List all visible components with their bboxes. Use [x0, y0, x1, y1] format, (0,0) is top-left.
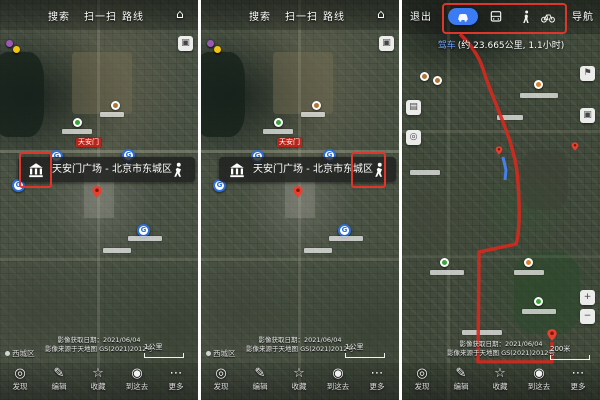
- nav-item-edit[interactable]: ✎编辑: [241, 366, 279, 392]
- more-icon: ⋯: [559, 366, 597, 382]
- map-label: [430, 270, 464, 275]
- lake-patch: [201, 52, 245, 137]
- map-label: [263, 129, 293, 134]
- route-summary: 驾车(约 23.665公里, 1.1小时): [402, 38, 600, 51]
- flower-marker[interactable]: [207, 40, 214, 47]
- district-label: 西城区: [5, 348, 35, 359]
- park-poi-marker[interactable]: [440, 258, 449, 267]
- map-label: [522, 309, 556, 314]
- nav-item-discover[interactable]: ◎发现: [202, 366, 240, 392]
- bottom-nav: ◎发现 ✎编辑 ☆收藏 ◉到这去 ⋯更多: [201, 363, 399, 400]
- landmark-icon[interactable]: [228, 161, 246, 179]
- nav-item-more[interactable]: ⋯更多: [358, 366, 396, 392]
- annotation-box-transport-modes: [442, 3, 567, 34]
- route-distance-time: (约 23.665公里, 1.1小时): [458, 41, 564, 51]
- poi-title: 天安门广场 - 北京市东城区: [52, 157, 163, 182]
- map-label: [520, 93, 558, 98]
- scale-bar: 200米: [550, 344, 590, 360]
- map-label: [304, 248, 332, 253]
- nav-item-favorite[interactable]: ☆收藏: [79, 366, 117, 392]
- traffic-icon[interactable]: ▤: [406, 100, 421, 115]
- layers-icon[interactable]: ▣: [178, 36, 193, 51]
- map-label: [62, 129, 92, 134]
- park-poi-marker[interactable]: [274, 118, 283, 127]
- search-button[interactable]: 搜索: [249, 8, 271, 23]
- flower-marker[interactable]: [6, 40, 13, 47]
- road: [402, 255, 600, 258]
- more-icon: ⋯: [358, 366, 396, 382]
- poi-marker[interactable]: [433, 76, 442, 85]
- navigate-button[interactable]: 导航: [572, 8, 594, 23]
- layers-icon[interactable]: ▣: [379, 36, 394, 51]
- nav-item-edit[interactable]: ✎编辑: [442, 366, 480, 392]
- home-icon[interactable]: ⌂: [377, 7, 385, 21]
- district-label: 西城区: [206, 348, 236, 359]
- pin-icon: ◉: [118, 366, 156, 382]
- layers-icon[interactable]: ▣: [580, 108, 595, 123]
- map-label: [497, 115, 523, 120]
- pencil-icon: ✎: [241, 366, 279, 382]
- exit-button[interactable]: 退出: [410, 8, 432, 23]
- poi-pin[interactable]: [570, 140, 580, 153]
- map-label: [128, 236, 162, 241]
- screenshot-route-view: 退出 导航: [402, 0, 600, 400]
- star-icon: ☆: [481, 366, 519, 382]
- route-mode-label[interactable]: 驾车: [438, 41, 456, 51]
- nav-item-go-here[interactable]: ◉到这去: [118, 366, 156, 392]
- city-block-patch: [522, 150, 568, 210]
- discover-icon: ◎: [1, 366, 39, 382]
- flag-icon[interactable]: ⚑: [580, 66, 595, 81]
- temple-poi-marker[interactable]: [111, 101, 120, 110]
- map-label: [100, 112, 124, 117]
- map-label: [301, 112, 325, 117]
- star-icon: ☆: [79, 366, 117, 382]
- flower-marker[interactable]: [214, 46, 221, 53]
- screenshot-poi-left-highlight: G G G G 天安门 搜索 扫一扫 路线 ⌂ ▣ 天安门广场 - 北京市东城区: [0, 0, 198, 400]
- nav-item-go-here[interactable]: ◉到这去: [319, 366, 357, 392]
- park-poi-marker[interactable]: [534, 297, 543, 306]
- poi-marker[interactable]: [524, 258, 533, 267]
- triptych-screenshot: G G G G 天安门 搜索 扫一扫 路线 ⌂ ▣ 天安门广场 - 北京市东城区: [0, 0, 600, 400]
- nav-item-discover[interactable]: ◎发现: [403, 366, 441, 392]
- pin-icon: ◉: [319, 366, 357, 382]
- tiananmen-map-label: 天安门: [76, 138, 101, 147]
- scan-button[interactable]: 扫一扫: [285, 8, 318, 23]
- nav-item-more[interactable]: ⋯更多: [559, 366, 597, 392]
- route-button[interactable]: 路线: [122, 8, 144, 23]
- nav-item-favorite[interactable]: ☆收藏: [481, 366, 519, 392]
- streetview-icon[interactable]: [169, 161, 187, 179]
- map-label: [462, 330, 502, 335]
- scale-bar: 1公里: [345, 342, 385, 358]
- bottom-nav: ◎发现 ✎编辑 ☆收藏 ◉到这去 ⋯更多: [0, 363, 198, 400]
- location-pin[interactable]: [291, 183, 305, 201]
- nav-item-favorite[interactable]: ☆收藏: [280, 366, 318, 392]
- zoom-in-button[interactable]: +: [580, 290, 595, 305]
- discover-icon: ◎: [202, 366, 240, 382]
- map-label: [103, 248, 131, 253]
- discover-icon[interactable]: ◎: [406, 130, 421, 145]
- park-poi-marker[interactable]: [73, 118, 82, 127]
- park-poi-marker[interactable]: [534, 80, 543, 89]
- route-button[interactable]: 路线: [323, 8, 345, 23]
- forbidden-city-patch: [273, 52, 333, 114]
- bottom-nav: ◎发现 ✎编辑 ☆收藏 ◉到这去 ⋯更多: [402, 363, 600, 400]
- search-button[interactable]: 搜索: [48, 8, 70, 23]
- nav-item-discover[interactable]: ◎发现: [1, 366, 39, 392]
- zoom-out-button[interactable]: −: [580, 309, 595, 324]
- poi-marker[interactable]: [420, 72, 429, 81]
- road: [201, 258, 399, 261]
- scale-bar: 1公里: [144, 342, 184, 358]
- map-label: [329, 236, 363, 241]
- tiananmen-map-label: 天安门: [277, 138, 302, 147]
- forbidden-city-patch: [72, 52, 132, 114]
- nav-item-go-here[interactable]: ◉到这去: [520, 366, 558, 392]
- home-icon[interactable]: ⌂: [176, 7, 184, 21]
- top-toolbar: 搜索 扫一扫 路线 ⌂: [0, 0, 198, 30]
- temple-poi-marker[interactable]: [312, 101, 321, 110]
- top-toolbar: 搜索 扫一扫 路线 ⌂: [201, 0, 399, 30]
- location-pin[interactable]: [90, 183, 104, 201]
- nav-item-more[interactable]: ⋯更多: [157, 366, 195, 392]
- flower-marker[interactable]: [13, 46, 20, 53]
- more-icon: ⋯: [157, 366, 195, 382]
- annotation-box-poi-left-icon: [19, 152, 52, 188]
- map-label: [410, 170, 440, 175]
- pin-icon: ◉: [520, 366, 558, 382]
- pencil-icon: ✎: [442, 366, 480, 382]
- screenshot-poi-right-highlight: G G G G 天安门 搜索 扫一扫 路线 ⌂ ▣ 天安门广场 - 北京市东城区: [201, 0, 399, 400]
- scan-button[interactable]: 扫一扫: [84, 8, 117, 23]
- nav-item-edit[interactable]: ✎编辑: [40, 366, 78, 392]
- annotation-box-poi-right-icon: [351, 152, 386, 188]
- discover-icon: ◎: [403, 366, 441, 382]
- pencil-icon: ✎: [40, 366, 78, 382]
- road: [0, 258, 198, 261]
- star-icon: ☆: [280, 366, 318, 382]
- poi-pin[interactable]: [494, 144, 504, 157]
- lake-patch: [0, 52, 44, 137]
- map-label: [514, 270, 544, 275]
- road: [402, 130, 600, 133]
- poi-title: 天安门广场 - 北京市东城区: [253, 157, 364, 182]
